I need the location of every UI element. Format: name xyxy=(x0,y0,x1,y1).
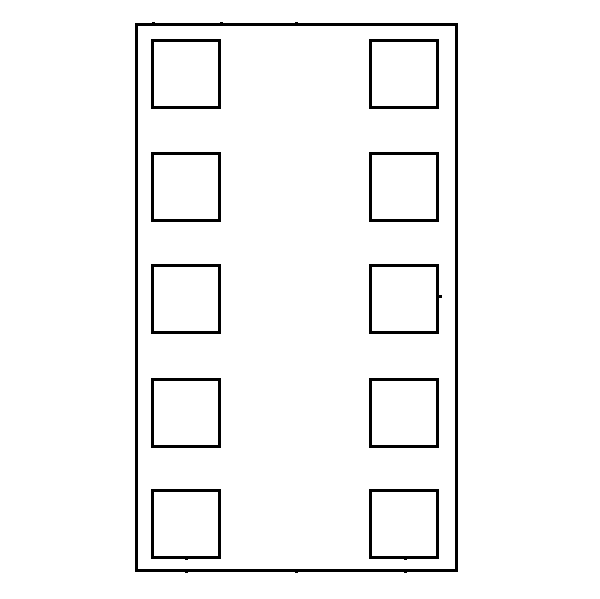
pad-square-right-2 xyxy=(369,152,439,222)
package-outline-diagram xyxy=(0,0,600,599)
pad-square-left-3 xyxy=(151,264,221,334)
tick-left-edge-lower xyxy=(135,473,138,476)
tick-left-edge-bottom xyxy=(135,559,138,562)
tick-right-pad-edge-center xyxy=(439,295,442,298)
pad-square-right-4 xyxy=(369,378,439,448)
pad-square-right-3 xyxy=(369,264,439,334)
tick-top-pad-right-edge xyxy=(220,22,223,25)
tick-bottom-left-pad-center xyxy=(185,570,188,573)
pad-square-right-1 xyxy=(369,39,439,109)
tick-bottom-right-pad-center xyxy=(404,570,407,573)
pad-square-left-5 xyxy=(151,489,221,559)
pad-square-left-1 xyxy=(151,39,221,109)
tick-pad-right-bottom-center xyxy=(404,557,407,560)
tick-top-centerline xyxy=(295,22,298,25)
tick-left-pad-edge-upper xyxy=(151,184,154,187)
pad-square-left-4 xyxy=(151,378,221,448)
pad-square-left-2 xyxy=(151,152,221,222)
tick-left-edge-center xyxy=(135,295,138,298)
tick-top-pad-left-edge xyxy=(152,22,155,25)
tick-pad-left-bottom-center xyxy=(185,557,188,560)
pad-square-right-5 xyxy=(369,489,439,559)
tick-left-edge-upper xyxy=(135,184,138,187)
tick-bottom-centerline xyxy=(295,570,298,573)
